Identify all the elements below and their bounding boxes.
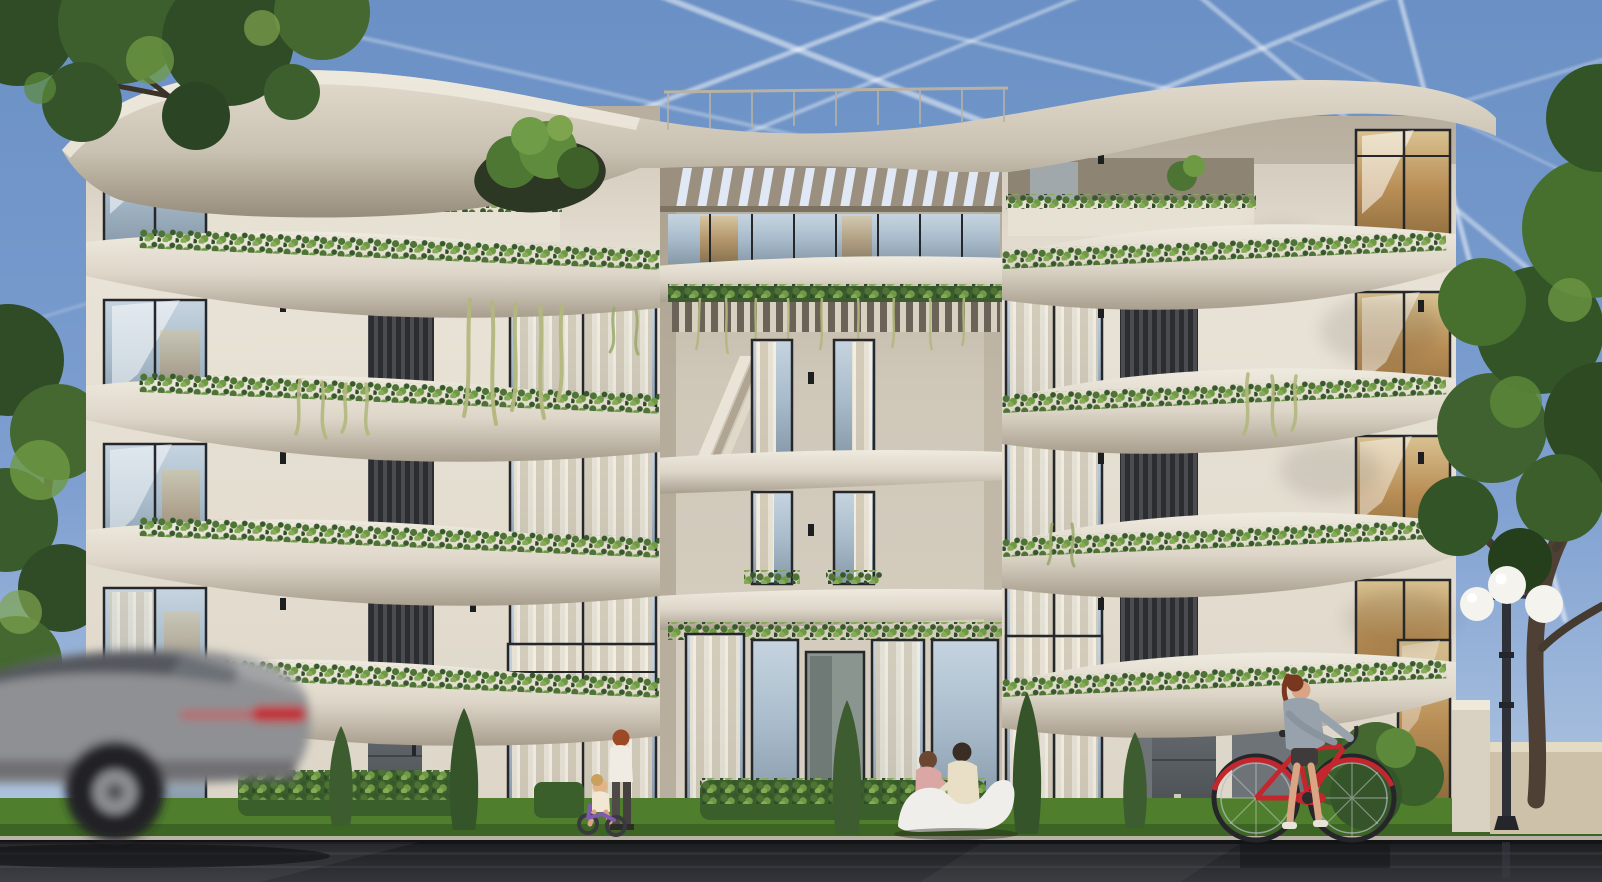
lamp-globe — [1525, 585, 1563, 623]
architectural-rendering — [0, 0, 1602, 882]
lamp-pole — [1502, 598, 1511, 830]
bicycle-reflection — [1240, 842, 1390, 868]
car-taillight — [252, 706, 306, 722]
lamp-globe — [1488, 566, 1526, 604]
central-bay — [650, 152, 1010, 810]
wall-sconce — [808, 524, 814, 536]
lamp-globe — [1460, 587, 1494, 621]
louver-panels-right — [1120, 292, 1198, 662]
louver-panels-left — [368, 300, 434, 668]
wall-sconce — [808, 372, 814, 384]
rendering-canvas — [0, 0, 1602, 882]
lamppost-reflection — [1502, 842, 1510, 878]
street — [0, 840, 1602, 882]
central-glass-band — [668, 214, 1000, 264]
